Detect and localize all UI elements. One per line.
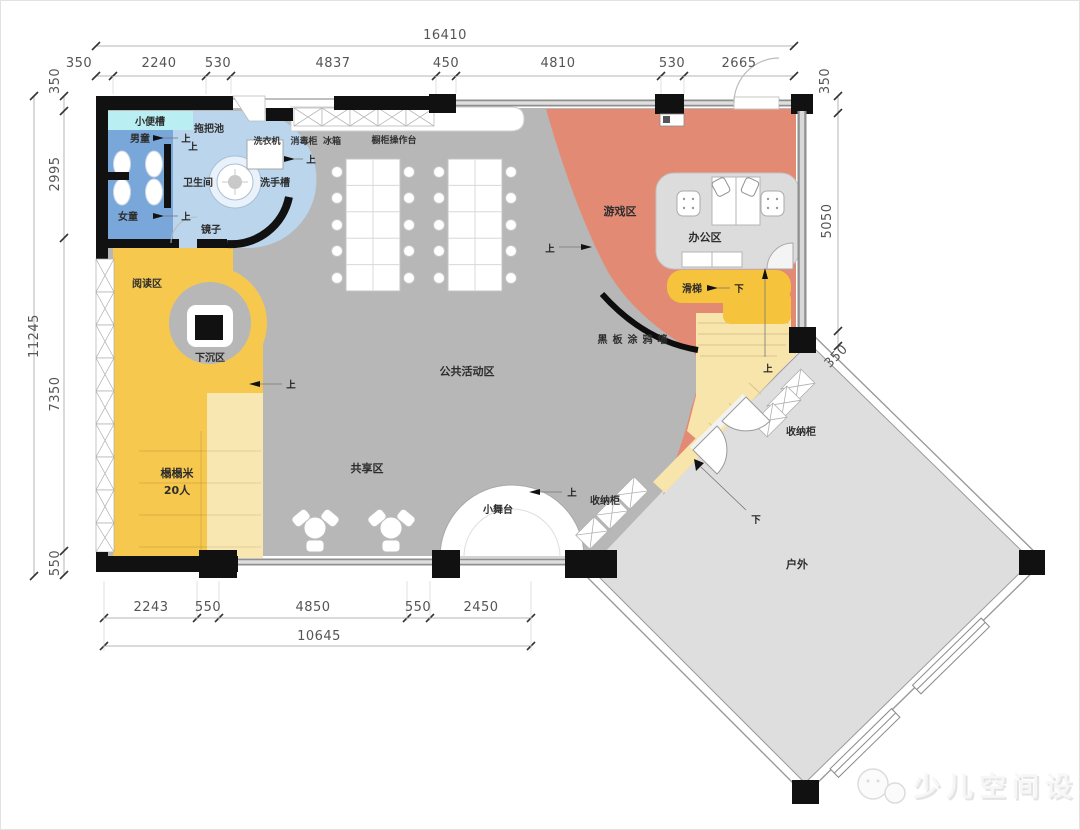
label-reading: 阅读区 [132, 277, 162, 290]
label-wash-basin: 洗手槽 [260, 176, 290, 189]
label-storage-2: 收纳柜 [786, 425, 816, 438]
dim: 2450 [463, 600, 498, 615]
dim: 2665 [721, 56, 756, 71]
dim: 450 [433, 56, 459, 71]
column [429, 94, 456, 113]
watermark: 少儿空间设计 少儿空间设计 [858, 769, 1080, 805]
dim: 550 [195, 600, 221, 615]
dim: 350 [818, 68, 833, 94]
armchair [677, 191, 700, 216]
dim: 2243 [133, 600, 168, 615]
column [789, 327, 816, 353]
label-girls: 女童 [118, 210, 138, 223]
dim: 350 [48, 68, 63, 94]
label-slide: 滑梯 [682, 282, 702, 295]
column [199, 550, 237, 578]
watermark-text: 少儿空间设计 [913, 771, 1080, 803]
bookshelf-hatch [96, 259, 114, 552]
mark-up: 上 [286, 379, 296, 391]
column [432, 550, 460, 578]
kitchen-counter [291, 107, 524, 131]
label-storage-1: 收纳柜 [590, 494, 620, 507]
dim: 2240 [141, 56, 176, 71]
column [565, 550, 617, 578]
label-shared: 共享区 [351, 461, 384, 475]
mark-up: 上 [545, 243, 555, 255]
mark-up: 上 [567, 487, 577, 499]
dim: 2995 [48, 156, 63, 191]
dim: 4837 [315, 56, 350, 71]
label-mirror: 镜子 [201, 223, 221, 236]
label-tatami-count: 20人 [164, 483, 191, 497]
dim-left-total: 11245 [27, 314, 42, 358]
label-disinfect: 消毒柜 [290, 135, 317, 147]
mark-up: 上 [763, 363, 773, 375]
label-stage: 小舞台 [482, 503, 513, 516]
reading-tatami-area [113, 248, 267, 558]
mark-down: 下 [751, 515, 761, 526]
label-urinal: 小便槽 [134, 115, 165, 128]
label-office: 办公区 [689, 230, 722, 244]
floor-plan-page: 小便槽 拖把池 男童 女童 卫生间 洗手槽 镜子 洗衣机 消毒柜 冰箱 橱柜操作… [0, 0, 1080, 830]
label-counter: 橱柜操作台 [371, 134, 416, 146]
dim: 350 [66, 56, 92, 71]
label-fridge: 冰箱 [323, 135, 341, 147]
dim: 550 [405, 600, 431, 615]
dim: 530 [659, 56, 685, 71]
column [792, 780, 819, 804]
label-boys: 男童 [130, 132, 150, 145]
mark-down: 下 [734, 284, 744, 295]
dim: 4810 [540, 56, 575, 71]
label-outdoor: 户外 [786, 557, 808, 571]
dim: 550 [48, 550, 63, 576]
mark-up: 上 [181, 211, 191, 223]
label-bathroom: 卫生间 [183, 176, 213, 189]
mark-up: 上 [188, 141, 198, 153]
armchair [761, 191, 784, 216]
dim: 7350 [48, 376, 63, 411]
upper-cabinet-hatch [294, 108, 434, 126]
mark-up: 上 [306, 154, 316, 166]
dim: 530 [205, 56, 231, 71]
label-tatami: 榻榻米 [161, 466, 195, 480]
entrance-door [734, 97, 779, 109]
label-washing-machine: 洗衣机 [253, 135, 280, 147]
column [655, 94, 684, 114]
label-public: 公共活动区 [440, 364, 495, 378]
label-mop-pool: 拖把池 [194, 122, 224, 135]
dim: 4850 [295, 600, 330, 615]
floor-plan-svg: 小便槽 拖把池 男童 女童 卫生间 洗手槽 镜子 洗衣机 消毒柜 冰箱 橱柜操作… [1, 1, 1080, 830]
dim-bottom-total: 10645 [297, 629, 341, 644]
column [1019, 550, 1045, 575]
dim-top-total: 16410 [423, 28, 467, 43]
label-game: 游戏区 [604, 204, 637, 218]
wechat-icon [858, 769, 905, 803]
office-area [656, 173, 799, 269]
label-blackboard: 黑板涂鸦墙 [598, 333, 673, 346]
label-sunken: 下沉区 [195, 351, 225, 364]
dim: 5050 [820, 203, 835, 238]
